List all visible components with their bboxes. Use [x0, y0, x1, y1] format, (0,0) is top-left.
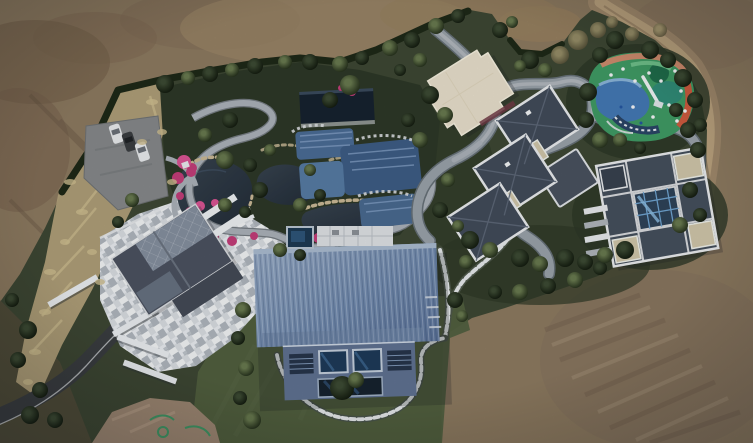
vignette	[0, 0, 753, 443]
aerial-estate-photo	[0, 0, 753, 443]
aerial-photo-viewport	[0, 0, 753, 443]
